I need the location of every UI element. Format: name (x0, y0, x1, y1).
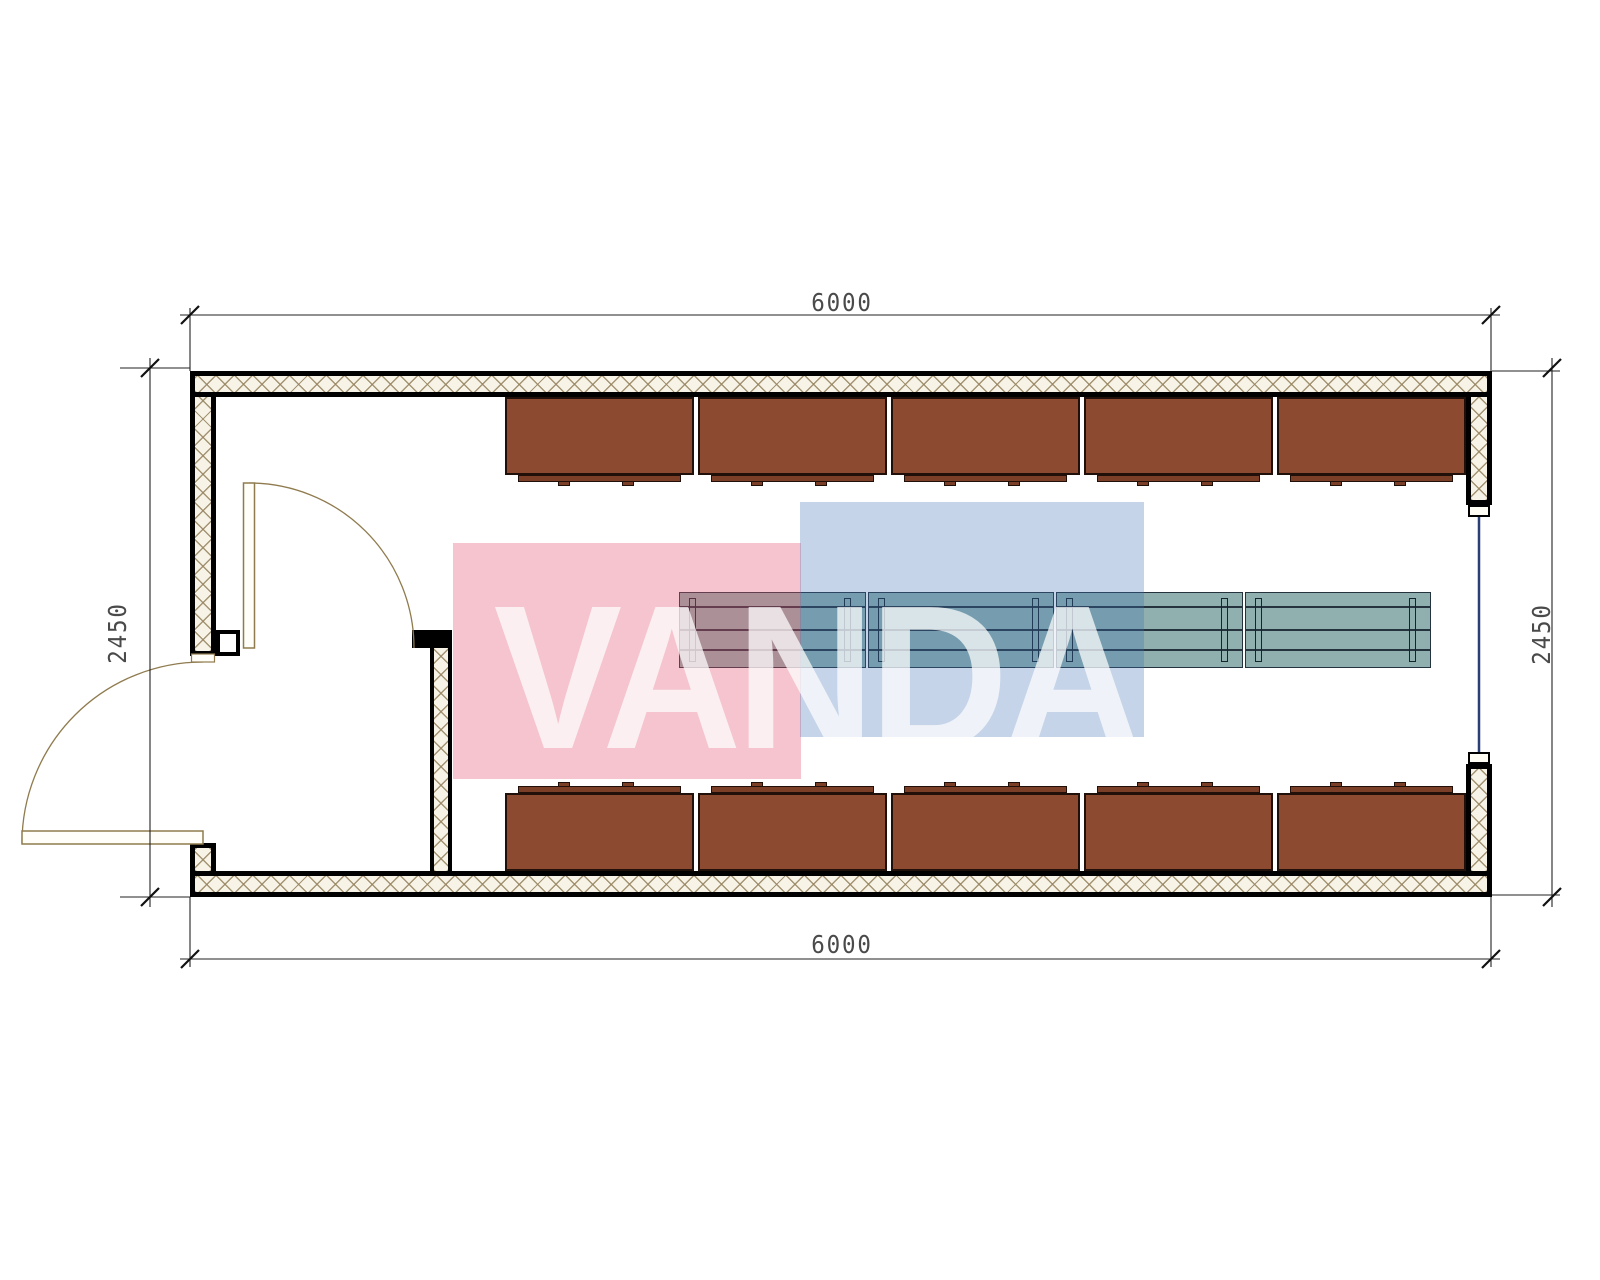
floor-plan-canvas: 6000 6000 2450 2450 VANDA (0, 0, 1600, 1280)
dim-label-left: 2450 (103, 561, 129, 705)
exterior-door-frame-mark (192, 654, 215, 662)
exterior-door-leaf (22, 831, 203, 844)
interior-door-leaf (244, 483, 255, 648)
interior-door-swing-arc (249, 483, 414, 648)
watermark-text: VANDA (430, 563, 1201, 793)
dim-label-bottom: 6000 (770, 930, 914, 956)
dim-label-top: 6000 (770, 288, 914, 314)
dim-label-right: 2450 (1527, 562, 1553, 706)
